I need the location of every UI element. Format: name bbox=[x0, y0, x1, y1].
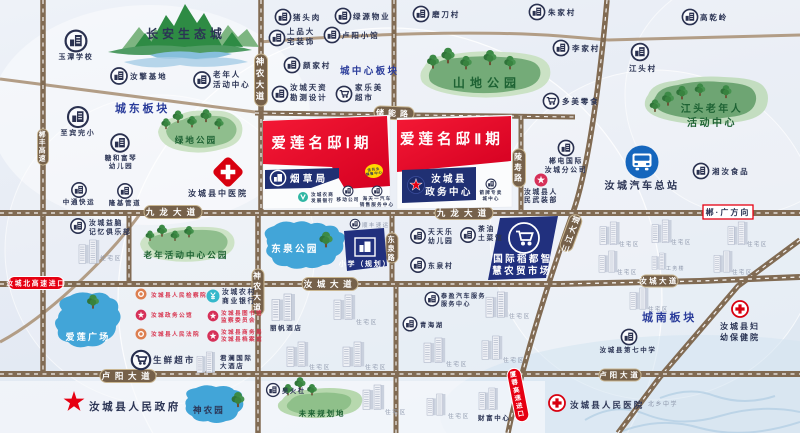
svg-text:东泉村: 东泉村 bbox=[428, 261, 454, 270]
svg-text:朱家村: 朱家村 bbox=[548, 7, 576, 17]
svg-text:财富中心: 财富中心 bbox=[478, 413, 511, 422]
svg-text:住宅区: 住宅区 bbox=[365, 363, 387, 371]
svg-text:汝城大道: 汝城大道 bbox=[304, 279, 357, 289]
svg-text:住宅区: 住宅区 bbox=[648, 305, 669, 313]
svg-text:箭牌专卖: 箭牌专卖 bbox=[480, 189, 503, 196]
svg-text:幼儿园: 幼儿园 bbox=[428, 236, 454, 245]
svg-text:慧农贸市场: 慧农贸市场 bbox=[492, 265, 551, 277]
svg-text:汝城分公司: 汝城分公司 bbox=[545, 165, 587, 174]
svg-text:汝城县档案馆: 汝城县档案馆 bbox=[221, 335, 263, 343]
svg-text:住宅区: 住宅区 bbox=[747, 240, 768, 248]
svg-text:汝城县妇: 汝城县妇 bbox=[720, 321, 760, 331]
svg-text:城中心: 城中心 bbox=[482, 195, 499, 202]
svg-text:绿源物业: 绿源物业 bbox=[353, 11, 391, 21]
svg-text:城东板块: 城东板块 bbox=[115, 101, 170, 115]
svg-text:玉潭学校: 玉潭学校 bbox=[59, 52, 94, 61]
svg-text:上品大: 上品大 bbox=[287, 26, 315, 36]
svg-text:住宅区: 住宅区 bbox=[617, 268, 638, 276]
svg-text:土菜馆: 土菜馆 bbox=[478, 233, 504, 242]
svg-text:住宅区: 住宅区 bbox=[732, 268, 753, 276]
svg-text:勘测设计: 勘测设计 bbox=[290, 92, 328, 102]
svg-text:神农园: 神农园 bbox=[193, 405, 225, 415]
svg-text:住宅区: 住宅区 bbox=[309, 363, 331, 371]
svg-text:汝城县中医院: 汝城县中医院 bbox=[188, 188, 248, 198]
svg-text:住宅区: 住宅区 bbox=[448, 412, 470, 420]
svg-text:北乡中学: 北乡中学 bbox=[648, 400, 678, 408]
svg-text:汝城县: 汝城县 bbox=[431, 173, 467, 185]
svg-text:汝城农商: 汝城农商 bbox=[311, 191, 334, 198]
svg-text:监察委员会: 监察委员会 bbox=[221, 316, 256, 324]
svg-text:泰盈汽车服务: 泰盈汽车服务 bbox=[440, 292, 486, 300]
svg-text:湘汝食品: 湘汝食品 bbox=[712, 166, 750, 176]
svg-text:颜家村: 颜家村 bbox=[303, 60, 331, 70]
svg-text:住宅区: 住宅区 bbox=[503, 356, 525, 364]
svg-text:东泉路: 东泉路 bbox=[387, 235, 397, 262]
svg-text:幼儿园: 幼儿园 bbox=[109, 161, 133, 170]
svg-text:超市: 超市 bbox=[354, 92, 374, 102]
svg-text:卢阳小馆: 卢阳小馆 bbox=[342, 30, 380, 40]
svg-text:住宅区: 住宅区 bbox=[356, 318, 378, 326]
svg-text:城中心板块: 城中心板块 bbox=[340, 65, 399, 77]
svg-text:老年活动中心公园: 老年活动中心公园 bbox=[142, 250, 228, 260]
svg-text:汝城县人民医院: 汝城县人民医院 bbox=[570, 400, 644, 410]
svg-text:汝城县人民政府: 汝城县人民政府 bbox=[89, 400, 181, 413]
svg-text:汝擎基地: 汝擎基地 bbox=[130, 71, 168, 81]
svg-text:汝城益脑: 汝城益脑 bbox=[89, 218, 123, 227]
svg-text:住宅区: 住宅区 bbox=[619, 240, 640, 248]
svg-text:老年人: 老年人 bbox=[212, 69, 241, 79]
svg-text:神农大道: 神农大道 bbox=[255, 57, 267, 102]
svg-text:绿地公园: 绿地公园 bbox=[175, 135, 218, 145]
svg-text:郴·广方向: 郴·广方向 bbox=[706, 207, 751, 217]
svg-text:卢阳大道: 卢阳大道 bbox=[102, 371, 155, 381]
svg-text:国际稻都智: 国际稻都智 bbox=[493, 253, 552, 265]
svg-text:糖和富琴: 糖和富琴 bbox=[105, 153, 138, 162]
svg-text:住宅区: 住宅区 bbox=[385, 408, 407, 416]
svg-text:生鲜超市: 生鲜超市 bbox=[153, 355, 196, 365]
svg-text:汝城汽车总站: 汝城汽车总站 bbox=[605, 179, 680, 192]
svg-text:汝城县图书馆: 汝城县图书馆 bbox=[221, 309, 263, 317]
svg-text:陵寿路: 陵寿路 bbox=[514, 152, 524, 183]
svg-text:猪头肉: 猪头肉 bbox=[292, 12, 321, 22]
svg-text:磨刀村: 磨刀村 bbox=[431, 9, 460, 19]
svg-text:卢阳大道: 卢阳大道 bbox=[599, 370, 640, 380]
svg-text:长安生态城: 长安生态城 bbox=[146, 26, 226, 41]
svg-text:未来规划地: 未来规划地 bbox=[299, 408, 346, 418]
svg-text:汝城北高速进口: 汝城北高速进口 bbox=[6, 279, 65, 288]
svg-text:君澜国际: 君澜国际 bbox=[220, 353, 253, 362]
svg-text:海天一汽车: 海天一汽车 bbox=[363, 195, 392, 202]
svg-text:发展银行: 发展银行 bbox=[310, 197, 334, 204]
svg-text:活动中心: 活动中心 bbox=[687, 116, 737, 129]
svg-text:服务中心: 服务中心 bbox=[441, 300, 471, 308]
svg-text:汝城天资: 汝城天资 bbox=[290, 82, 328, 92]
svg-text:幼保健院: 幼保健院 bbox=[720, 332, 760, 342]
svg-text:李家村: 李家村 bbox=[571, 43, 600, 53]
svg-text:住宅区: 住宅区 bbox=[100, 254, 122, 262]
svg-text:中通快运: 中通快运 bbox=[63, 197, 96, 206]
svg-text:江头老年人: 江头老年人 bbox=[681, 102, 744, 115]
svg-text:隆基管道: 隆基管道 bbox=[109, 198, 142, 207]
svg-text:住宅区: 住宅区 bbox=[446, 360, 468, 368]
svg-text:爱莲名邸Ⅰ期: 爱莲名邸Ⅰ期 bbox=[271, 134, 372, 152]
svg-text:爱莲名邸Ⅱ期: 爱莲名邸Ⅱ期 bbox=[400, 130, 504, 148]
svg-text:青海湖: 青海湖 bbox=[420, 320, 444, 329]
svg-text:汝城农村: 汝城农村 bbox=[222, 287, 256, 296]
svg-text:汝城大道: 汝城大道 bbox=[639, 276, 679, 286]
svg-text:九龙大道: 九龙大道 bbox=[145, 207, 200, 217]
svg-text:汝城政务公馆: 汝城政务公馆 bbox=[151, 311, 193, 319]
svg-text:郴电国际: 郴电国际 bbox=[549, 156, 583, 165]
svg-text:茶油: 茶油 bbox=[477, 224, 495, 233]
svg-text:移动公司: 移动公司 bbox=[337, 196, 360, 203]
svg-text:山地公园: 山地公园 bbox=[453, 75, 521, 90]
svg-text:记忆俱乐部: 记忆俱乐部 bbox=[89, 227, 131, 236]
svg-text:郴丰高速: 郴丰高速 bbox=[39, 130, 48, 163]
svg-text:至宾完小: 至宾完小 bbox=[61, 128, 96, 137]
svg-text:小学（规划）: 小学（规划） bbox=[338, 259, 392, 268]
svg-text:销售服务中心: 销售服务中心 bbox=[360, 201, 394, 208]
svg-text:东泉公园: 东泉公园 bbox=[271, 243, 319, 255]
svg-text:汝城县人民检察院: 汝城县人民检察院 bbox=[151, 291, 207, 299]
svg-text:住宅区: 住宅区 bbox=[509, 312, 531, 320]
svg-text:汝城县人: 汝城县人 bbox=[524, 187, 558, 196]
svg-text:九龙大道: 九龙大道 bbox=[436, 208, 491, 218]
svg-text:顺丰速运: 顺丰速运 bbox=[362, 221, 390, 229]
svg-text:宅装饰: 宅装饰 bbox=[287, 36, 315, 46]
svg-text:烟草局: 烟草局 bbox=[290, 173, 328, 185]
svg-text:民武装部: 民武装部 bbox=[524, 195, 558, 204]
svg-text:大酒店: 大酒店 bbox=[220, 361, 244, 370]
svg-text:活动中心: 活动中心 bbox=[213, 79, 251, 89]
svg-text:工务楼: 工务楼 bbox=[666, 265, 685, 272]
svg-text:汝城县商务局: 汝城县商务局 bbox=[221, 328, 263, 336]
svg-text:吴火社: 吴火社 bbox=[282, 386, 306, 395]
svg-text:政务中心: 政务中心 bbox=[425, 186, 473, 198]
svg-text:爱莲广场: 爱莲广场 bbox=[65, 331, 110, 342]
svg-text:汝城县人民法院: 汝城县人民法院 bbox=[151, 330, 200, 338]
svg-text:家乐美: 家乐美 bbox=[355, 82, 383, 92]
svg-text:江头村: 江头村 bbox=[629, 63, 657, 73]
svg-text:高乾岭: 高乾岭 bbox=[700, 12, 728, 22]
svg-text:商业银行: 商业银行 bbox=[222, 296, 256, 305]
svg-text:丽帆酒店: 丽帆酒店 bbox=[270, 323, 303, 332]
svg-text:住宅区: 住宅区 bbox=[671, 238, 692, 246]
svg-text:天天乐: 天天乐 bbox=[428, 227, 454, 236]
svg-text:汝城县第七中学: 汝城县第七中学 bbox=[600, 345, 657, 354]
svg-text:多美零食: 多美零食 bbox=[562, 96, 600, 106]
